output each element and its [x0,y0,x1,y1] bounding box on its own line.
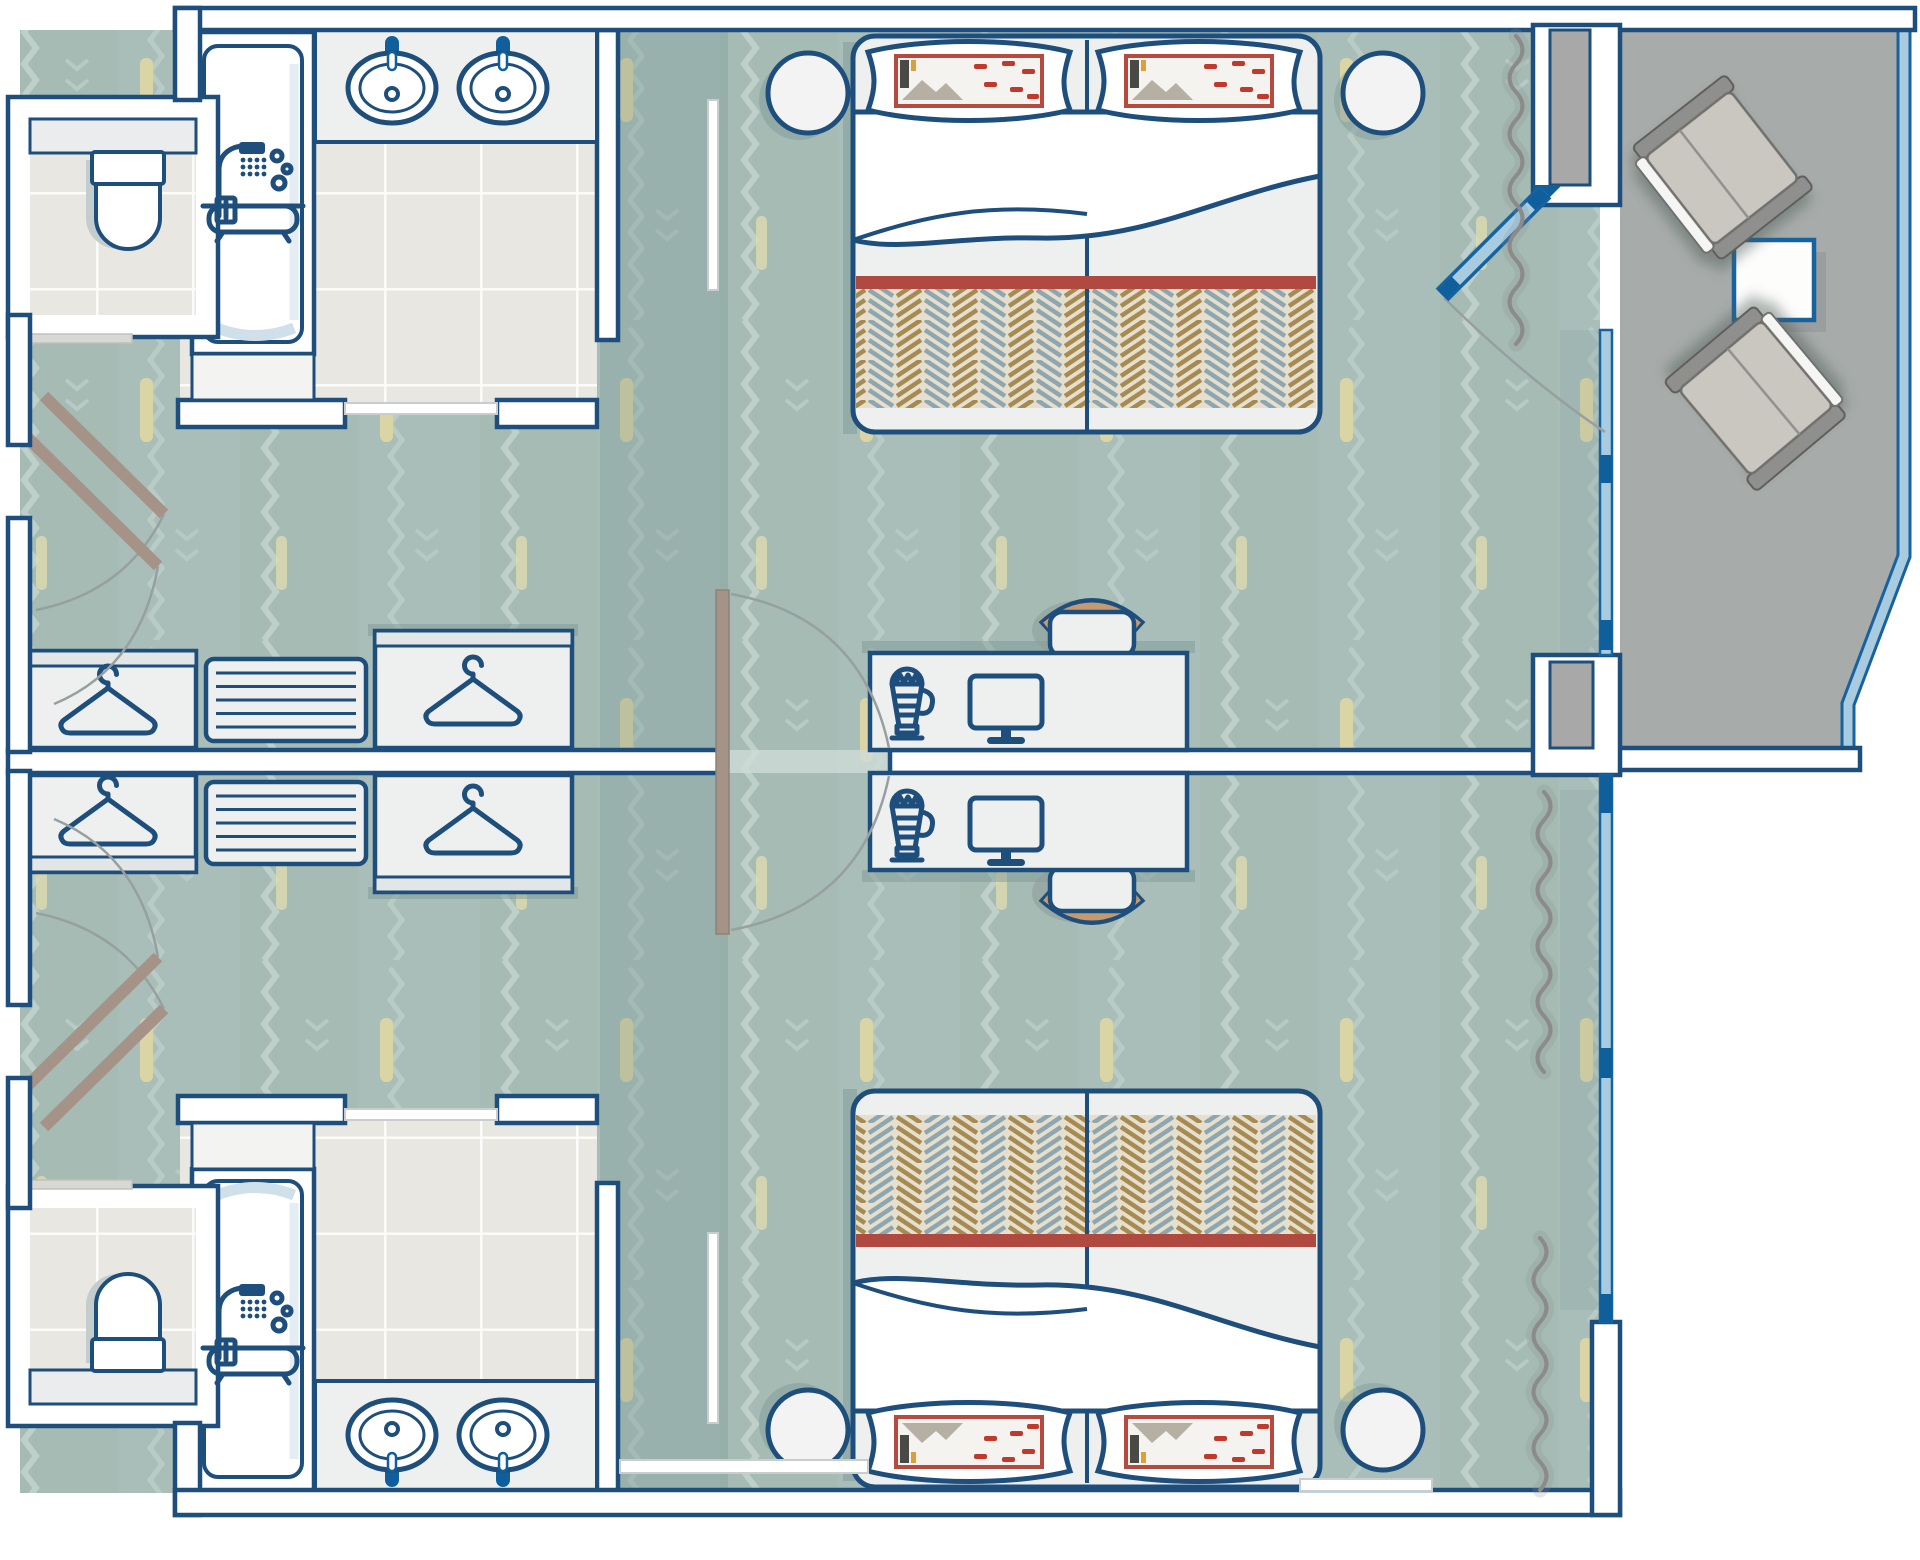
wall-trim [708,100,718,290]
column [1550,30,1590,185]
window-wall-bottom [1600,775,1612,1322]
window-sill-unit [620,1460,868,1473]
balcony: Balcony with two lounge chairs and side … [1620,30,1910,748]
window-wall-top [1600,330,1612,655]
window-sill-unit [1300,1479,1432,1491]
floorplan-canvas: Floor plan of two connecting hotel guest… [0,0,1920,1560]
column [1550,662,1593,748]
wall-trim [708,1233,718,1423]
side-table [1734,240,1814,320]
floorplan-page: Floor plan of two connecting hotel guest… [0,0,1920,1560]
balcony-bottom-wall [1612,748,1860,770]
connecting-doorway-floor [723,750,890,773]
